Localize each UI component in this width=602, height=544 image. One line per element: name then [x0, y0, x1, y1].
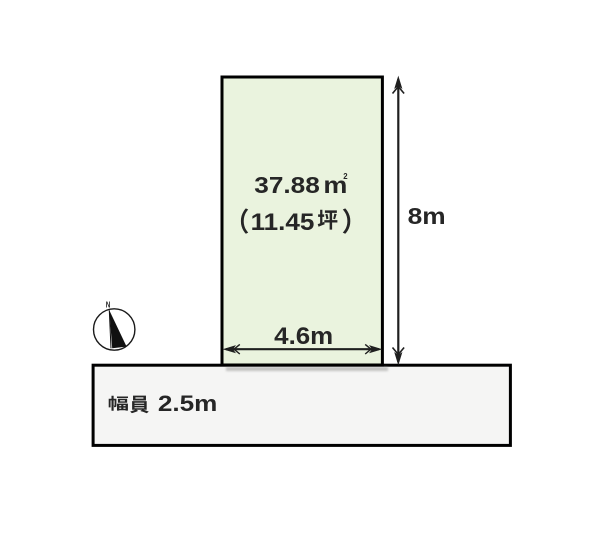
- svg-text:2: 2: [343, 172, 348, 181]
- svg-text:N: N: [106, 300, 111, 309]
- svg-text:37.88: 37.88: [254, 172, 320, 198]
- svg-text:2.5m: 2.5m: [158, 391, 218, 416]
- svg-text:4.6m: 4.6m: [274, 323, 333, 350]
- svg-text:8m: 8m: [408, 203, 446, 229]
- svg-text:11.45: 11.45: [251, 210, 315, 236]
